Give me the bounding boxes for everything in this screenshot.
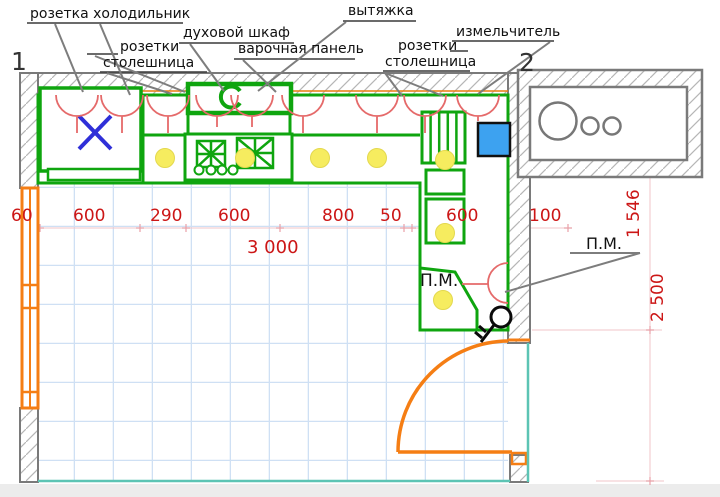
sockets-left-label-line2: столешница <box>103 56 194 71</box>
sockets-right-label-line2: столешница <box>385 55 476 70</box>
bottom-edge-shade <box>0 484 720 497</box>
dim-seg1: 600 <box>73 207 105 225</box>
wall-marker-1: 1 <box>11 49 27 74</box>
ceiling-light-icon <box>368 149 387 168</box>
dim-seg4: 800 <box>322 207 354 225</box>
dim-seg2: 290 <box>150 207 182 225</box>
kitchen-floor-plan: розетка холодильник розетки столешница д… <box>0 0 720 497</box>
dim-right-upper: 1 546 <box>624 178 644 238</box>
fridge-socket-label: розетка холодильник <box>30 7 190 22</box>
wall-marker-2: 2 <box>519 50 535 75</box>
dishwasher-label: П.М. <box>420 271 458 291</box>
dim-seg7: 100 <box>529 207 561 225</box>
dim-total-width: 3 000 <box>247 239 299 257</box>
ceiling-light-icon <box>156 149 175 168</box>
dim-seg6: 600 <box>446 207 478 225</box>
oven-label: духовой шкаф <box>183 26 290 41</box>
dim-seg3: 600 <box>218 207 250 225</box>
sockets-left-label-line1: розетки <box>120 40 179 55</box>
sockets-right-label-line1: розетки <box>398 39 457 54</box>
wall-left-lower <box>20 408 38 482</box>
fridge-icon <box>40 88 141 180</box>
wall-left-upper <box>20 73 38 188</box>
hood-label: вытяжка <box>348 4 414 19</box>
ceiling-light-icon <box>434 291 453 310</box>
ceiling-light-icon <box>436 224 455 243</box>
dishwasher-callout-label: П.М. <box>586 234 622 253</box>
dim-seg5: 50 <box>380 207 402 225</box>
ceiling-light-icon <box>311 149 330 168</box>
sink-icon <box>478 123 510 156</box>
dim-right-total: 2 500 <box>648 252 668 322</box>
grinder-label: измельчитель <box>456 25 560 40</box>
dim-window: 60 <box>11 207 33 225</box>
ceiling-light-icon <box>436 151 455 170</box>
hob-label: варочная панель <box>238 42 364 57</box>
ceiling-light-icon <box>236 149 255 168</box>
